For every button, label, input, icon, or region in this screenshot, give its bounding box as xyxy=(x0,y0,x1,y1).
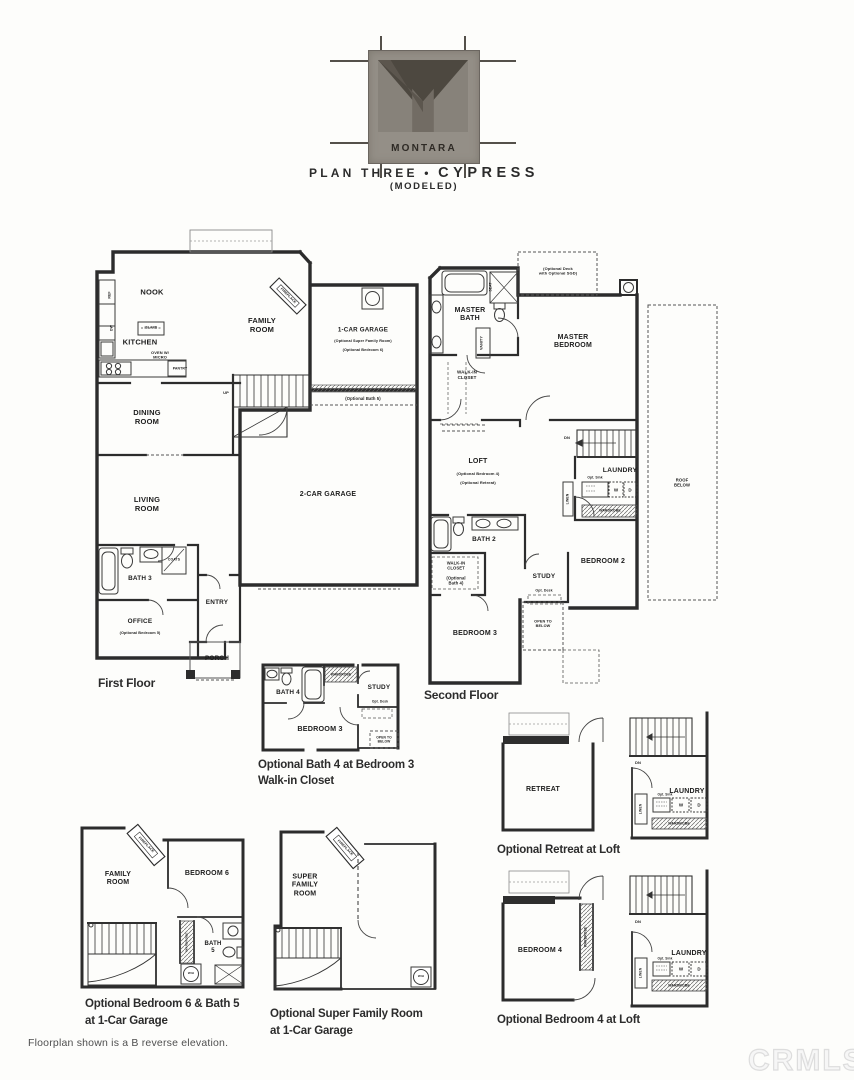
detail-superfam-drawing xyxy=(265,828,447,998)
opt-bath5-hatch xyxy=(311,385,416,392)
wall-band xyxy=(503,896,555,904)
label-2car-garage: 2-CAR GARAGE xyxy=(300,491,356,499)
door-arcs xyxy=(358,920,376,938)
stairs xyxy=(88,923,156,985)
label-office: OFFICE xyxy=(128,618,153,626)
label-roof-below: ROOF BELOW xyxy=(670,478,694,488)
label-seat: SEAT xyxy=(489,283,493,292)
wall-band xyxy=(503,736,569,744)
footer-note: Floorplan shown is a B reverse elevation… xyxy=(28,1037,228,1049)
label-super-family-room: SUPER FAMILY ROOM xyxy=(292,874,318,899)
detail-bath4-drawing xyxy=(258,655,426,755)
label-1car-garage: 1-CAR GARAGE xyxy=(338,326,388,333)
label-opt-sink: Opt. Sink xyxy=(658,793,673,797)
detail-bath4-plan: BATH 4 WARDROBE STUDY Opt. Desk BEDROOM … xyxy=(258,655,426,797)
logo-box: MONTARA xyxy=(368,50,480,164)
label-retreat: RETREAT xyxy=(526,786,560,794)
label-linen: LINEN xyxy=(639,968,643,978)
detail-bedroom4-drawing xyxy=(495,868,720,1010)
detail-bedroom4-caption: Optional Bedroom 4 at Loft xyxy=(497,1014,640,1026)
label-loft: LOFT xyxy=(468,458,487,466)
label-laundry: LAUNDRY xyxy=(671,950,706,958)
first-floor-walls xyxy=(97,252,417,658)
first-floor-caption: First Floor xyxy=(98,676,155,690)
label-walkin-note: (Optional Bath 4) xyxy=(446,576,465,586)
label-study: STUDY xyxy=(368,684,391,692)
label-master-bedroom: MASTER BEDROOM xyxy=(554,334,592,351)
label-water-heater: W/H xyxy=(418,975,424,979)
label-kitchen: KITCHEN xyxy=(123,339,158,348)
label-opt-sink: Opt. Sink xyxy=(658,957,673,961)
label-wardrobe: WARDROBE xyxy=(185,932,189,951)
modeled-note: (MODELED) xyxy=(390,181,458,192)
stairs xyxy=(630,718,692,756)
plan-name: CYPRESS xyxy=(438,165,539,181)
label-master-bath: MASTER BATH xyxy=(455,307,486,324)
label-family-room: FAMILY ROOM xyxy=(248,317,276,335)
second-floor-caption: Second Floor xyxy=(424,688,498,702)
label-open-to-below: OPEN TO BELOW xyxy=(376,736,391,744)
label-opt-desk: Opt. Desk xyxy=(372,700,388,704)
label-opt-desk: Opt. Desk xyxy=(535,589,552,593)
label-study: STUDY xyxy=(533,573,556,581)
plan-title: PLAN THREE • CYPRESS xyxy=(309,165,539,181)
label-bedroom4: BEDROOM 4 xyxy=(518,947,562,955)
label-water-heater: W/H xyxy=(188,972,194,976)
bath3-fixtures xyxy=(99,547,186,594)
second-floor-stairs xyxy=(576,430,637,457)
label-bedroom2: BEDROOM 2 xyxy=(581,558,625,566)
label-wardrobe: WARDROBE xyxy=(331,673,351,677)
logo-wordmark: MONTARA xyxy=(369,143,479,154)
label-dryer: D xyxy=(628,487,631,492)
plan-prefix: PLAN THREE xyxy=(309,166,418,180)
label-bedroom3: BEDROOM 3 xyxy=(297,725,342,733)
detail-bed6-drawing xyxy=(80,822,258,994)
label-living-room: LIVING ROOM xyxy=(134,496,160,514)
detail-bath4-caption2: Walk-in Closet xyxy=(258,775,334,787)
label-1car-note1: (Optional Super Family Room) xyxy=(334,339,391,343)
label-bedroom6: BEDROOM 6 xyxy=(185,870,229,878)
label-dw: DW xyxy=(110,325,114,331)
logo-m-icon xyxy=(378,59,468,133)
first-floor-stairs xyxy=(233,375,310,437)
detail-bedroom4-plan: BEDROOM 4 WARDROBE DN LAUNDRY Opt. Sink … xyxy=(495,868,720,1030)
label-walkin-closet2: WALK-IN CLOSET xyxy=(447,561,466,571)
detail-bath4-caption1: Optional Bath 4 at Bedroom 3 xyxy=(258,759,414,771)
label-washer: W xyxy=(614,487,618,492)
label-bedroom3: BEDROOM 3 xyxy=(453,630,497,638)
label-washer: W xyxy=(679,802,683,807)
label-coats: COATS xyxy=(168,558,180,562)
stairs xyxy=(630,876,692,914)
label-loft-note2: (Optional Retreat) xyxy=(460,481,496,486)
label-linen: LINEN xyxy=(566,494,570,505)
detail-bed6-caption1: Optional Bedroom 6 & Bath 5 xyxy=(85,998,239,1010)
label-wardrobe-closet: WARDROBE xyxy=(584,927,588,948)
label-oven: OVEN W/ MICRO xyxy=(151,350,169,359)
detail-super-family-plan: SUPER FAMILY ROOM FIREPLACE W/H Optional… xyxy=(265,828,447,1038)
crmls-watermark: CRMLS xyxy=(748,1044,854,1078)
label-ref: REF xyxy=(108,291,112,298)
detail-superfam-caption2: at 1-Car Garage xyxy=(270,1025,353,1037)
second-floor-plan: MASTER BATH SEAT VANITY (Optional Deck w… xyxy=(420,250,730,715)
label-dryer: D xyxy=(697,802,700,807)
label-bath2: BATH 2 xyxy=(472,536,496,544)
detail-bed6-bath5-plan: FAMILY ROOM FIREPLACE BEDROOM 6 WARDROBE… xyxy=(80,822,258,1034)
detail-retreat-plan: RETREAT DN LAUNDRY Opt. Sink W D LINEN W… xyxy=(495,710,720,862)
label-family-room: FAMILY ROOM xyxy=(105,871,131,888)
detail-bed6-caption2: at 1-Car Garage xyxy=(85,1015,168,1027)
label-opt-deck: (Optional Deck with Optional SGD) xyxy=(539,266,577,275)
bath2-fixtures xyxy=(431,517,518,551)
label-pantry: PANTRY xyxy=(173,367,188,371)
walls xyxy=(82,828,243,987)
plan-separator: • xyxy=(424,166,431,180)
label-porch: PORCH xyxy=(205,655,229,663)
label-laundry: LAUNDRY xyxy=(603,467,637,475)
vent-circle xyxy=(624,283,634,293)
label-linen: LINEN xyxy=(639,804,643,814)
label-dining-room: DINING ROOM xyxy=(133,409,160,427)
label-office-note: (Optional Bedroom 5) xyxy=(120,631,161,635)
label-laundry: LAUNDRY xyxy=(669,788,704,796)
label-nook: NOOK xyxy=(140,289,163,298)
label-wardrobe: WARDROBE xyxy=(668,984,690,988)
label-opt-sink: Opt. Sink xyxy=(587,476,602,480)
label-open-to-below: OPEN TO BELOW xyxy=(534,620,552,629)
label-up: UP xyxy=(223,391,229,396)
label-island: ISLAND xyxy=(145,326,158,330)
label-wardrobe: WARDROBE xyxy=(668,822,690,826)
label-1car-note2: (Optional Bedroom 6) xyxy=(343,348,384,352)
label-dryer: D xyxy=(697,966,700,971)
detail-superfam-caption1: Optional Super Family Room xyxy=(270,1008,423,1020)
label-bath4: BATH 4 xyxy=(276,689,300,697)
label-wardrobe: WARDROBE xyxy=(599,509,621,513)
montara-logo: MONTARA xyxy=(330,36,516,178)
label-dn: DN xyxy=(635,920,641,925)
label-vanity: VANITY xyxy=(480,336,484,350)
label-washer: W xyxy=(679,966,683,971)
floorplan-sheet: MONTARA PLAN THREE • CYPRESS (MODELED) xyxy=(0,0,854,1080)
label-dn: DN xyxy=(564,436,570,441)
label-bath5: BATH 5 xyxy=(204,941,221,955)
label-dn: DN xyxy=(635,761,641,766)
stairs xyxy=(275,928,341,989)
door-arcs xyxy=(579,718,652,788)
label-bath3: BATH 3 xyxy=(128,575,152,583)
label-loft-note1: (Optional Bedroom 4) xyxy=(457,472,500,477)
water-heater-icon xyxy=(362,288,383,309)
label-walkin-closet: WALK-IN CLOSET xyxy=(457,370,477,381)
label-opt-bath5: (Optional Bath 5) xyxy=(345,397,380,402)
label-entry: ENTRY xyxy=(206,599,228,607)
detail-retreat-caption: Optional Retreat at Loft xyxy=(497,844,620,856)
